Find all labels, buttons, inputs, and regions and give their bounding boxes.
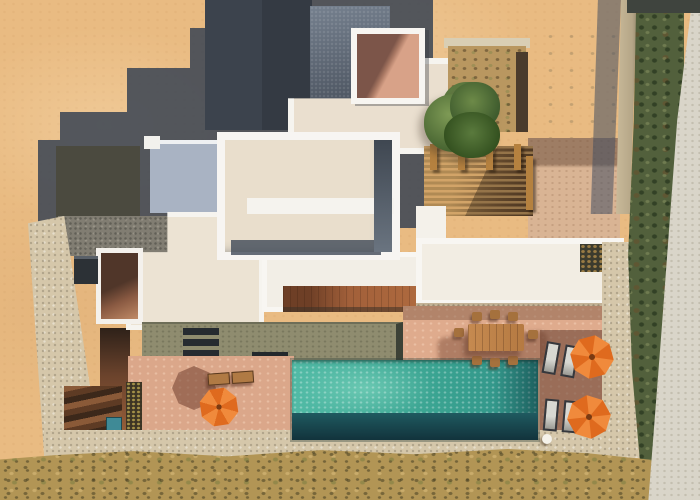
lounger [541,341,560,375]
white-ball [542,434,552,444]
grass-planter-strip [126,382,142,434]
chair [490,358,500,367]
tree [424,82,508,162]
roof-parapet-band [247,198,394,214]
parapet-tab [144,136,160,149]
chair [454,328,464,337]
aerial-villa-photo [0,0,700,500]
roof-inner-shadow [374,140,392,252]
chair [528,330,538,339]
roof-courtyard-left [96,248,143,324]
chair [472,356,482,365]
pergola-post [514,144,521,170]
swimming-pool [292,360,538,440]
chair [490,310,500,319]
tree-canopy [444,112,500,158]
chair [508,312,518,321]
dining-table [468,324,524,351]
dry-scrub-strip [0,448,668,500]
pool-overflow-edge [292,413,538,440]
chair [508,356,518,365]
top-wall-band [627,0,700,13]
roof-courtyard-top [351,28,425,104]
ac-unit [74,256,98,284]
sunbed [231,370,254,384]
sunbed [207,372,230,386]
chair [472,312,482,321]
parapet-shadow [231,240,381,255]
deck-steps [183,328,219,357]
bluegrey-roof [150,140,218,213]
lounger [543,398,560,431]
main-roof [217,132,400,260]
shaded-roof-section [205,0,265,130]
planter-wall-shadow [516,52,528,132]
dining-set [450,310,538,368]
pergola-post [526,156,533,210]
